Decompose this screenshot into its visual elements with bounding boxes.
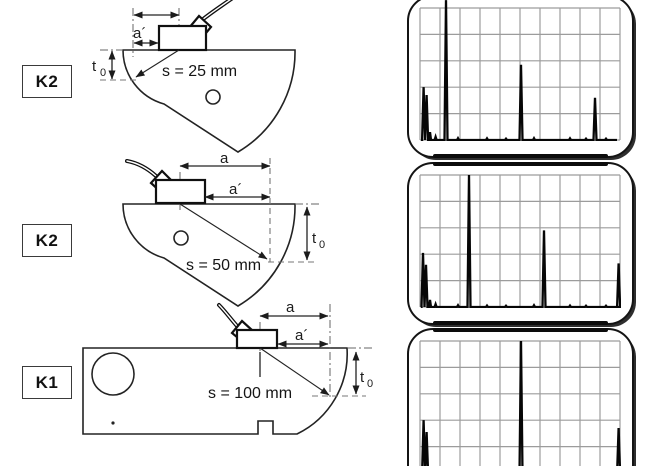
dimension-label-a-prime: a´ [133,25,146,42]
large-bore-hole [92,353,134,395]
dimension-label-a-prime: a´ [295,327,308,344]
sound-path-label: s = 25 mm [162,63,237,80]
angle-probe [159,26,206,50]
dimension-label-t0-subscript: 0 [100,67,106,79]
ascan-screen [419,333,621,466]
calibration-figure-canvas: K2 K2 K1 a´ t 0 s = 25 mm [0,0,663,466]
dimension-label-t0-subscript: 0 [367,378,373,390]
calibration-block-outline [123,204,295,306]
side-drilled-hole [174,231,188,245]
ascan-display-s25 [407,0,634,158]
angle-probe [237,330,277,348]
dimension-label-a: a [286,299,295,316]
dimension-label-t0: t [360,369,365,386]
ascan-screen [419,0,621,141]
reference-dot [111,421,114,424]
probe-cable-core [219,305,237,326]
ascan-screen [419,167,621,308]
sound-path-label: s = 50 mm [186,257,261,274]
diagram-k2-s25: a´ t 0 s = 25 mm [0,0,400,160]
dimension-label-t0: t [312,230,317,247]
dimension-label-a-prime: a´ [229,181,242,198]
angle-probe [156,180,205,203]
dimension-label-t0-subscript: 0 [319,239,325,251]
ascan-display-s100 [407,328,634,466]
sound-path-label: s = 100 mm [208,385,292,402]
side-drilled-hole [206,90,220,104]
probe-cable [127,161,156,176]
ascan-display-s50 [407,162,634,325]
dimension-label-t0: t [92,58,97,75]
ascan-signal-trace [421,0,617,140]
dimension-label-a: a [220,150,229,167]
ascan-signal-trace [421,341,620,466]
diagram-k1-s100: a a´ t 0 s = 100 mm [0,295,400,466]
